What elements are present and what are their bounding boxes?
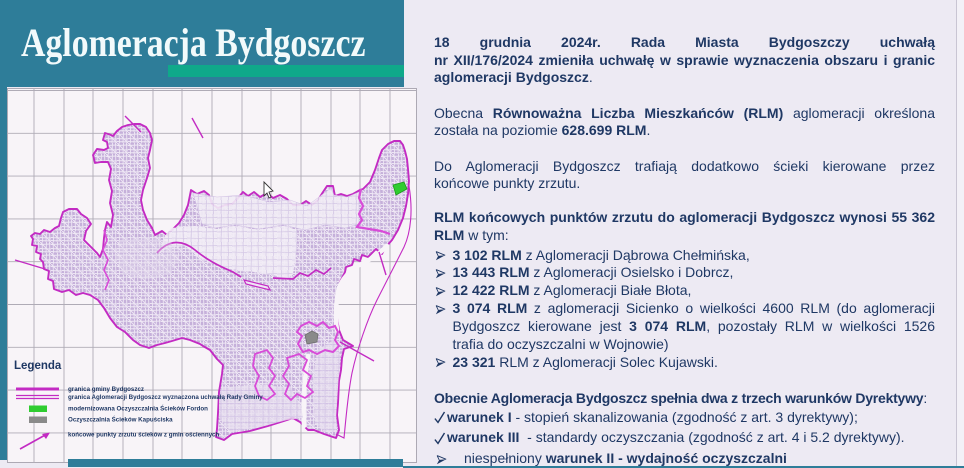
svg-text:granica Aglomeracji Bydgoszcz: granica Aglomeracji Bydgoszcz wyznaczona… <box>68 394 263 401</box>
svg-text:granica gminy Bydgoszcz: granica gminy Bydgoszcz <box>68 386 144 393</box>
svg-text:Oczyszczalnia Ścieków Kapuścis: Oczyszczalnia Ścieków Kapuściska <box>68 417 173 424</box>
svg-text:końcowe punkty zrzutu ścieków: końcowe punkty zrzutu ścieków z gmin ośc… <box>68 432 219 439</box>
svg-text:modernizowana Oczyszczalnia Śc: modernizowana Oczyszczalnia Ścieków Ford… <box>68 406 208 413</box>
svg-text:Legenda: Legenda <box>14 360 62 372</box>
